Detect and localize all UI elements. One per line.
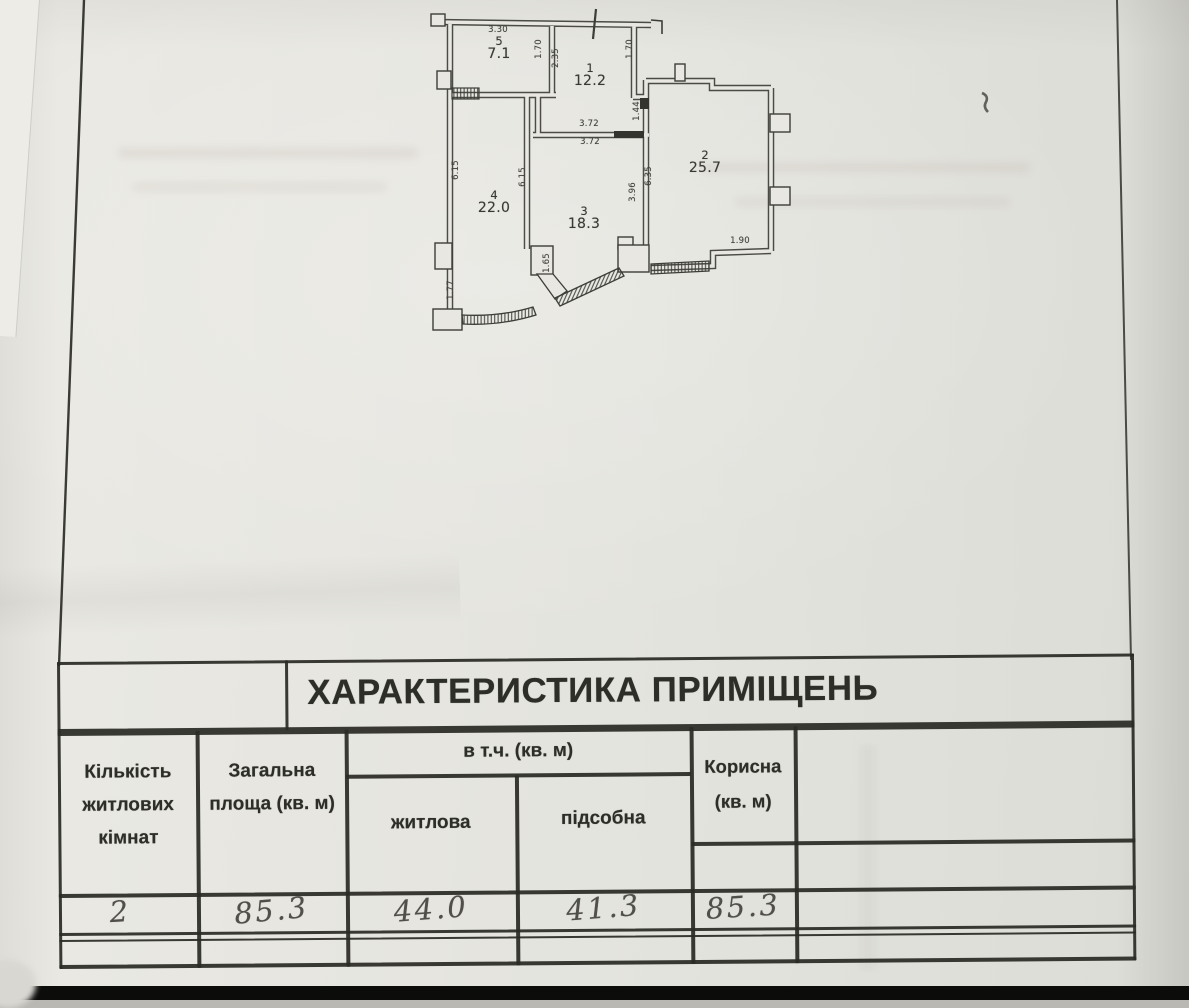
grid-line xyxy=(515,775,520,965)
header-living: житлова xyxy=(348,811,513,834)
dimension-label: 1.77 xyxy=(446,275,456,305)
bleed-through-mark xyxy=(735,198,1010,206)
room-label-2: 2 25.7 xyxy=(682,149,728,176)
table-title: ХАРАКТЕРИСТИКА ПРИМІЩЕНЬ xyxy=(57,667,1128,715)
room-area: 12.2 xyxy=(567,74,613,89)
dimension-label: 6.15 xyxy=(451,155,461,185)
room-area: 25.7 xyxy=(682,161,728,176)
room-label-4: 4 22.0 xyxy=(471,189,517,216)
dimension-label: 1.70 xyxy=(625,34,635,64)
room-area: 18.3 xyxy=(561,217,607,232)
dimension-label: 1.70 xyxy=(534,34,544,64)
dimension-label: 1.90 xyxy=(725,236,755,246)
dimension-label: 3.72 xyxy=(575,137,605,147)
bleed-through-mark xyxy=(700,163,1030,172)
dimension-label: 3.96 xyxy=(628,177,638,207)
photo-of-document: { "table": { "title": "ХАРАКТЕРИСТИКА ПР… xyxy=(0,0,1189,1000)
dimension-label: 6.35 xyxy=(644,161,654,191)
dimension-label: 2.35 xyxy=(551,43,561,73)
grid-line xyxy=(794,726,799,963)
room-label-5: 5 7.1 xyxy=(476,35,522,62)
header-including: в т.ч. (кв. м) xyxy=(348,739,689,764)
header-useful: Корисна (кв. м) xyxy=(694,748,793,819)
room-label-1: 1 12.2 xyxy=(567,62,613,89)
bleed-through-mark xyxy=(132,183,387,191)
room-label-3: 3 18.3 xyxy=(561,205,607,232)
dimension-label: 1.65 xyxy=(542,248,552,278)
value-useful-area: 85.3 xyxy=(690,885,796,929)
dimension-label: 1.44 xyxy=(632,96,642,126)
bleed-through-mark xyxy=(118,148,418,158)
grid-line xyxy=(691,839,1135,846)
room-area: 22.0 xyxy=(471,201,517,216)
header-total-area: Загальна площа (кв. м) xyxy=(206,754,339,821)
dimension-label: 6.15 xyxy=(518,162,528,192)
grid-line xyxy=(58,721,1135,736)
dimension-label: 3.30 xyxy=(483,25,513,35)
value-rooms-count: 2 xyxy=(58,889,182,934)
photo-edge xyxy=(0,986,1189,1000)
header-rooms-count: Кількість житлових кімнат xyxy=(62,755,195,855)
premises-table: ХАРАКТЕРИСТИКА ПРИМІЩЕНЬ Кількість житло… xyxy=(57,654,1136,969)
header-utility: підсобна xyxy=(518,807,688,830)
dimension-label: 3.72 xyxy=(574,119,604,129)
room-area: 7.1 xyxy=(476,47,522,62)
